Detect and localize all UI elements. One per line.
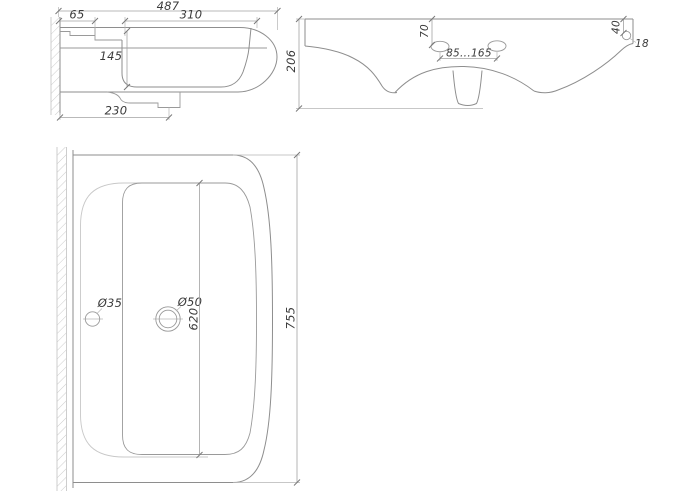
front-rim-curve-left	[305, 46, 397, 93]
front-bowl-underside	[395, 66, 534, 92]
washbasin-technical-drawing: 487 65 310 145 230	[0, 0, 700, 500]
dim-faucet-spacing: 85...165	[437, 48, 500, 62]
dim-bowl-length: 620	[187, 180, 203, 458]
front-height-label: 206	[284, 50, 298, 73]
side-drain-offset-label: 230	[105, 104, 128, 118]
side-overall-width-label: 487	[157, 0, 180, 13]
drawing-sheet: 487 65 310 145 230	[0, 0, 700, 500]
faucet-spacing-label: 85...165	[446, 48, 492, 60]
front-drain-trap	[453, 71, 482, 106]
drain-hole-diameter-label: Ø50	[177, 295, 203, 309]
side-front-bulge	[238, 28, 277, 93]
dim-ledge-width: 65	[56, 8, 98, 29]
dim-bowl-width: 310	[122, 8, 260, 37]
overall-length-label: 755	[284, 307, 298, 330]
dim-overall-width: 487	[56, 0, 281, 30]
overflow-drop-label: 40	[611, 20, 623, 34]
overflow-diameter-label: 18	[635, 38, 649, 50]
dim-drain-offset: 230	[57, 104, 172, 121]
front-rim-curve-right	[534, 44, 633, 93]
side-bowl-width-label: 310	[180, 8, 203, 22]
side-bowl-interior	[122, 28, 251, 87]
plan-view: Ø35 Ø50 620 755	[57, 147, 300, 491]
wall-hatch	[51, 17, 60, 115]
side-ledge-width-label: 65	[69, 8, 84, 22]
side-bowl-depth-label: 145	[100, 49, 123, 63]
faucet-drop-label: 70	[419, 24, 431, 38]
dim-bowl-depth: 145	[100, 28, 130, 90]
side-back-ledge	[60, 28, 122, 41]
faucet-hole-diameter-label: Ø35	[97, 296, 123, 310]
front-view: 206 70 85...165 40 18	[284, 16, 649, 112]
bowl-length-label: 620	[187, 308, 201, 331]
side-view: 487 65 310 145 230	[51, 0, 281, 121]
dim-height: 206	[284, 16, 483, 112]
wall-hatch-plan	[57, 147, 67, 491]
